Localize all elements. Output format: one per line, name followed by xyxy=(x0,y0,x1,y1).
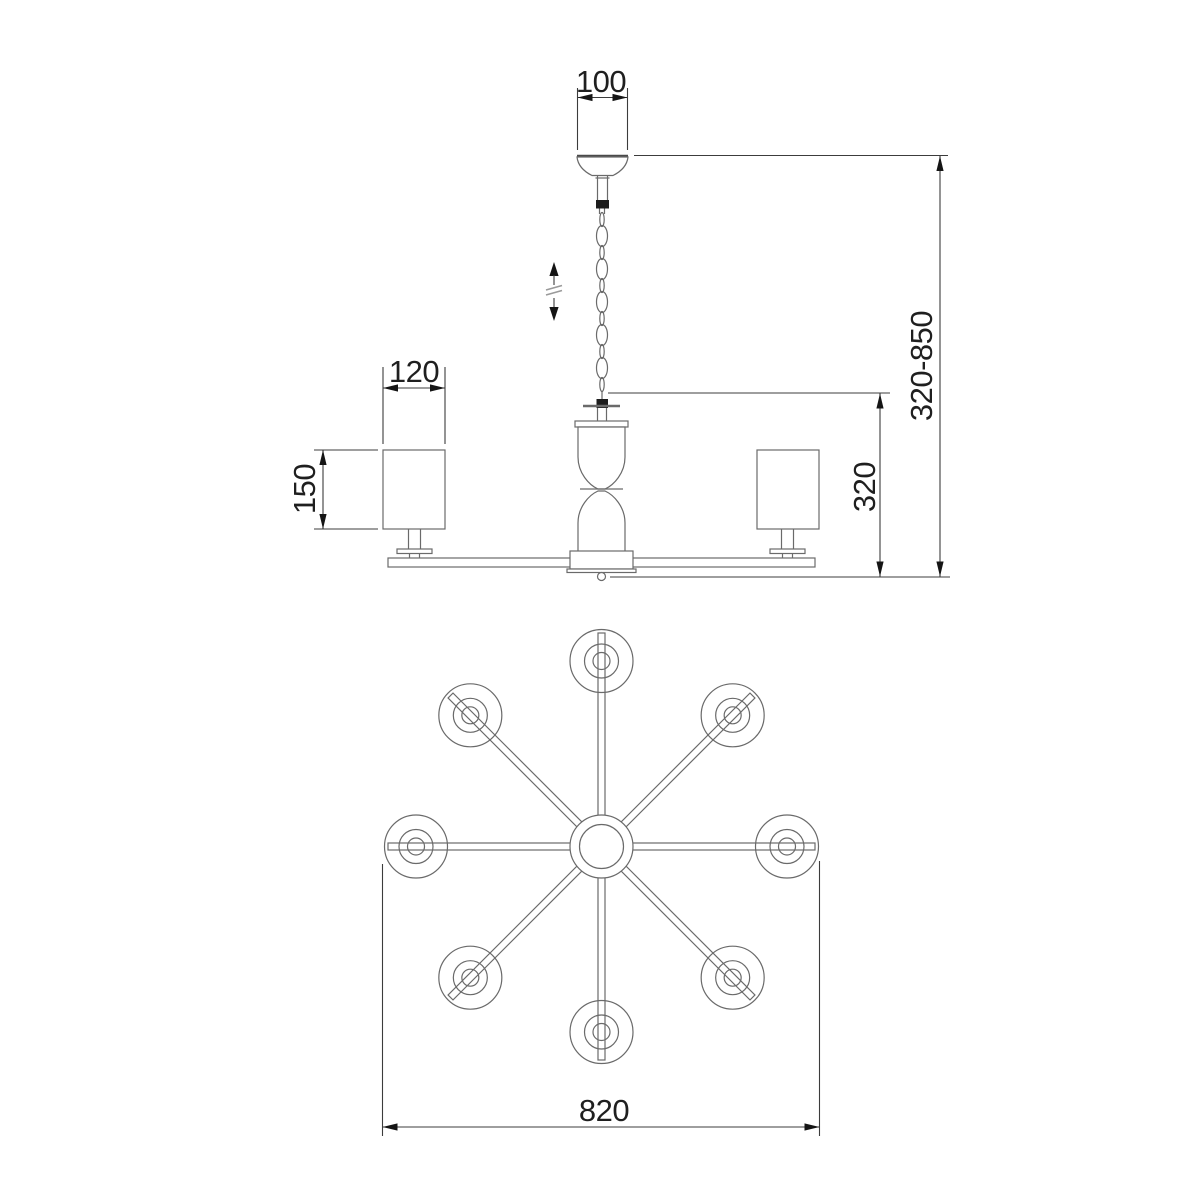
upper-bell xyxy=(578,427,625,489)
chain-link xyxy=(600,312,604,326)
height-adjust-icon xyxy=(546,262,562,321)
dim-overall-diameter-label: 820 xyxy=(579,1093,629,1128)
arrow-up-icon xyxy=(936,156,943,171)
technical-drawing-page: 100 xyxy=(0,0,1200,1200)
chain-link xyxy=(597,358,608,379)
shade-outer-circle xyxy=(426,933,515,1022)
chain-link xyxy=(597,292,608,313)
shade-inner-circle xyxy=(458,966,482,990)
shade-cylinder xyxy=(757,450,819,529)
chain-link xyxy=(600,279,604,293)
shade-outer-circle xyxy=(385,815,448,878)
dim-frame-drop-label: 320 xyxy=(847,462,882,512)
arm xyxy=(598,633,605,824)
chandelier-drawing: 100 xyxy=(0,0,1200,1200)
arrow-up-icon xyxy=(876,394,883,409)
dim-canopy-width: 100 xyxy=(576,64,628,150)
arm-and-shade-0 xyxy=(624,815,819,878)
shade-inner-circle xyxy=(721,966,745,990)
body-top-plate xyxy=(575,421,628,427)
arm-bar xyxy=(388,551,815,581)
dim-shade-width-label: 120 xyxy=(389,354,439,389)
finial-ball xyxy=(598,573,606,581)
shade-middle-circle xyxy=(446,954,494,1002)
left-shade xyxy=(383,450,445,558)
arm xyxy=(448,693,588,833)
arm-and-shade-180 xyxy=(385,815,580,878)
shade-outer-circle xyxy=(688,933,777,1022)
dim-shade-width: 120 xyxy=(383,354,445,444)
ceiling-canopy xyxy=(577,156,628,214)
chain-link xyxy=(597,259,608,280)
arm-and-shade-270 xyxy=(570,630,633,825)
shade-middle-circle xyxy=(709,691,757,739)
shade-flange xyxy=(770,549,805,554)
center-hub xyxy=(570,815,633,878)
shade-outer-circle xyxy=(688,671,777,760)
dim-overall-height-label: 320-850 xyxy=(904,311,939,422)
arrow-up-icon xyxy=(319,450,326,465)
side-view: 100 xyxy=(287,64,950,581)
shade-middle-circle xyxy=(585,1015,619,1049)
arm xyxy=(615,860,755,1000)
shade-outer-circle xyxy=(570,1001,633,1064)
shade-inner-circle xyxy=(408,838,425,855)
chain-link xyxy=(600,378,604,392)
shade-inner-circle xyxy=(458,703,482,727)
arm xyxy=(615,693,755,833)
arm xyxy=(598,869,605,1060)
chain-coupler xyxy=(596,200,609,209)
center-hub-block xyxy=(570,551,633,569)
arm xyxy=(388,843,579,850)
shade-middle-circle xyxy=(585,644,619,678)
arrow-left-icon xyxy=(383,1123,398,1130)
lower-bell xyxy=(578,491,625,552)
shade-inner-circle xyxy=(721,703,745,727)
shade-middle-circle xyxy=(709,954,757,1002)
shade-middle-circle xyxy=(770,830,804,864)
arm xyxy=(624,843,815,850)
shade-outer-circle xyxy=(756,815,819,878)
arm xyxy=(448,860,588,1000)
arrow-down-icon xyxy=(876,562,883,577)
shade-inner-circle xyxy=(593,653,610,670)
chain-link xyxy=(597,226,608,247)
top-view: 820 xyxy=(383,630,820,1137)
dim-canopy-width-label: 100 xyxy=(576,64,626,99)
arm-and-shade-90 xyxy=(570,869,633,1064)
suspension-chain xyxy=(583,213,620,422)
shade-middle-circle xyxy=(446,691,494,739)
arrow-down-icon xyxy=(319,514,326,529)
arrow-down-icon xyxy=(936,562,943,577)
shade-cylinder xyxy=(383,450,445,529)
chain-link xyxy=(597,325,608,346)
dim-shade-height-label: 150 xyxy=(287,464,322,514)
shade-outer-circle xyxy=(570,630,633,693)
shade-outer-circle xyxy=(426,671,515,760)
chain-link xyxy=(600,345,604,359)
chain-link xyxy=(600,213,604,227)
chain-link xyxy=(600,246,604,260)
arrow-right-icon xyxy=(805,1123,820,1130)
hub-inner-circle xyxy=(580,825,624,869)
shade-inner-circle xyxy=(779,838,796,855)
shade-flange xyxy=(397,549,432,554)
right-shade xyxy=(757,450,819,558)
shade-middle-circle xyxy=(399,830,433,864)
dim-overall-diameter: 820 xyxy=(383,861,820,1136)
dim-shade-height: 150 xyxy=(287,450,378,529)
central-body xyxy=(575,421,628,552)
shade-inner-circle xyxy=(593,1024,610,1041)
